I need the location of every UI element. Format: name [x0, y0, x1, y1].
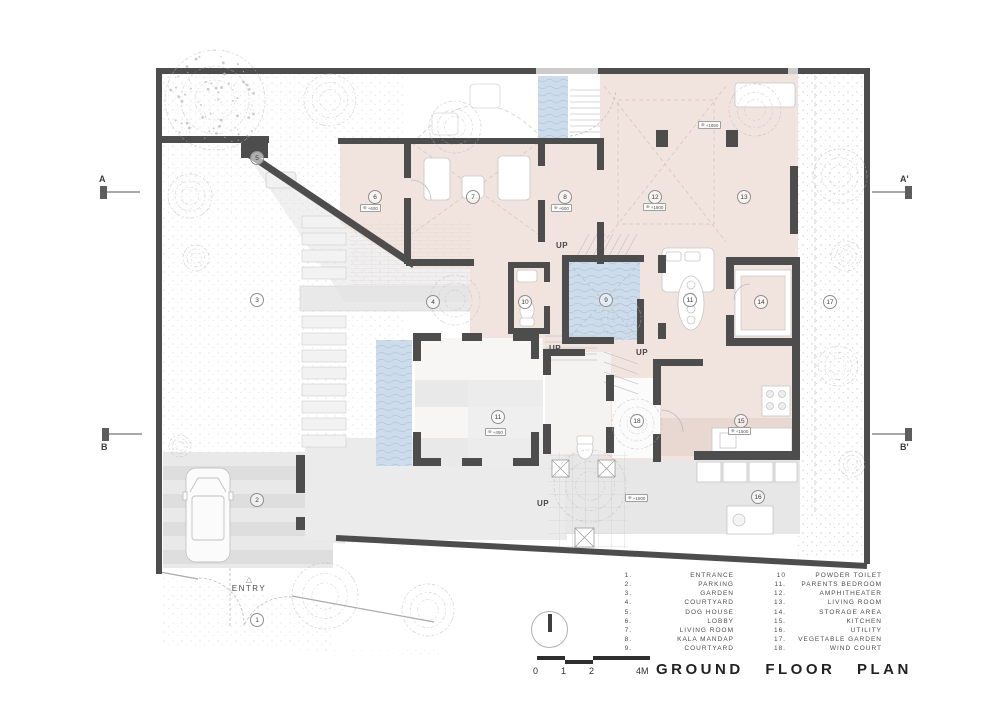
legend-item: 15.KITCHEN: [766, 617, 882, 626]
room-number-marker: 11: [683, 293, 697, 307]
legend-item: 7.LIVING ROOM: [612, 626, 734, 635]
room-number-marker: 18: [630, 414, 644, 428]
legend-item: 2.PARKING: [612, 580, 734, 589]
room-number-marker: 14: [754, 295, 768, 309]
level-tag: +1850: [698, 121, 721, 129]
section-marker-A-prime: A': [905, 186, 912, 199]
room-number-marker: 7: [466, 190, 480, 204]
room-number-marker: 4: [426, 295, 440, 309]
legend-column-1: 1.ENTRANCE2.PARKING3.GARDEN4.COURTYARD5.…: [612, 571, 734, 653]
room-number-marker: 3: [250, 293, 264, 307]
legend-item: 18.WIND COURT: [766, 644, 882, 653]
legend-item: 16.UTILITY: [766, 626, 882, 635]
room-number-marker: 12: [648, 190, 662, 204]
entry-label: ENTRY: [214, 584, 284, 593]
north-arrow-icon: [531, 611, 568, 648]
legend-item: 13.LIVING ROOM: [766, 598, 882, 607]
plan-title: GROUND FLOOR PLAN: [656, 661, 912, 678]
stair-up-label: UP: [636, 348, 648, 357]
entry-label-block: △ ENTRY: [214, 576, 284, 593]
stair-up-label: UP: [556, 241, 568, 250]
room-number-marker: 1: [250, 613, 264, 627]
room-number-marker: 5: [250, 151, 264, 165]
section-marker-A: A: [100, 186, 107, 199]
level-tag: +600: [360, 204, 381, 212]
legend-item: 5.DOG HOUSE: [612, 608, 734, 617]
room-number-marker: 11: [491, 410, 505, 424]
room-number-marker: 8: [558, 190, 572, 204]
room-number-marker: 17: [823, 295, 837, 309]
floor-plan-sheet: △ ENTRY 1.ENTRANCE2.PARKING3.GARDEN4.COU…: [0, 0, 1000, 707]
scale-label: 2: [589, 666, 594, 676]
plan-annotations: △ ENTRY 1.ENTRANCE2.PARKING3.GARDEN4.COU…: [0, 0, 1000, 707]
legend-item: 1.ENTRANCE: [612, 571, 734, 580]
level-tag: +1500: [625, 494, 648, 502]
legend-item: 11.PARENTS BEDROOM: [766, 580, 882, 589]
legend-item: 8.KALA MANDAP: [612, 635, 734, 644]
level-tag: +1800: [643, 203, 666, 211]
legend-item: 14.STORAGE AREA: [766, 608, 882, 617]
legend-item: 3.GARDEN: [612, 589, 734, 598]
entry-direction-icon: △: [214, 576, 284, 584]
legend-item: 6.LOBBY: [612, 617, 734, 626]
level-tag: +450: [485, 428, 506, 436]
room-number-marker: 13: [737, 190, 751, 204]
legend-item: 4.COURTYARD: [612, 598, 734, 607]
scale-label: 4M: [636, 666, 649, 676]
legend-item: 10POWDER TOILET: [766, 571, 882, 580]
room-number-marker: 6: [368, 190, 382, 204]
level-tag: +1500: [728, 427, 751, 435]
legend-item: 17.VEGETABLE GARDEN: [766, 635, 882, 644]
section-marker-B-prime: B': [905, 428, 912, 441]
room-number-marker: 9: [599, 293, 613, 307]
room-number-marker: 16: [751, 490, 765, 504]
legend-column-2: 10POWDER TOILET11.PARENTS BEDROOM12.AMPH…: [766, 571, 882, 653]
stair-up-label: UP: [537, 499, 549, 508]
scale-label: 1: [561, 666, 566, 676]
room-number-marker: 2: [250, 493, 264, 507]
room-number-marker: 10: [518, 295, 532, 309]
section-marker-B: B: [102, 428, 109, 441]
legend-item: 9.COURTYARD: [612, 644, 734, 653]
level-tag: +600: [551, 204, 572, 212]
stair-up-label: UP: [549, 344, 561, 353]
scale-label: 0: [533, 666, 538, 676]
room-number-marker: 15: [734, 414, 748, 428]
legend-item: 12.AMPHITHEATER: [766, 589, 882, 598]
